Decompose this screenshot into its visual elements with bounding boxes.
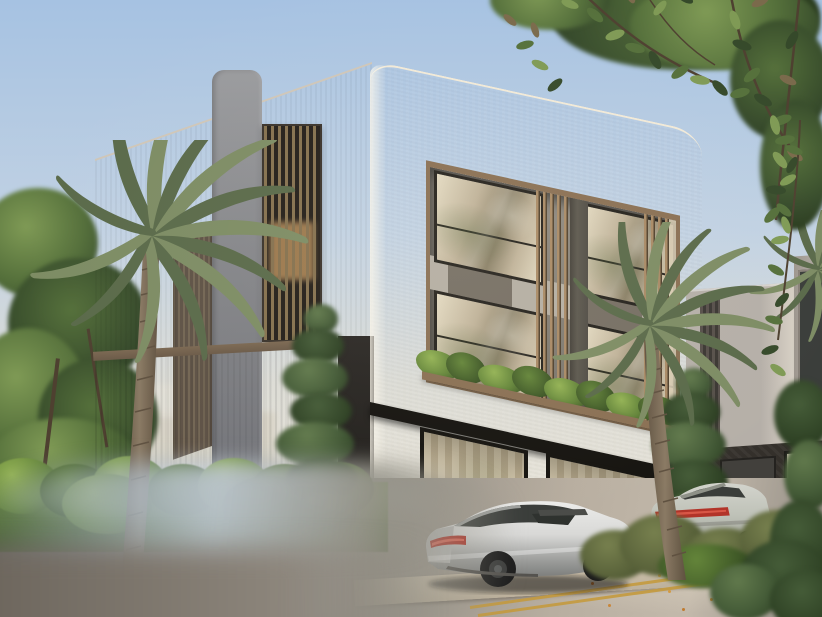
- conifer-corner: [700, 530, 822, 617]
- foreground-blur-shadow: [0, 548, 430, 617]
- architectural-render: [0, 0, 822, 617]
- hanging-branch: [758, 120, 822, 410]
